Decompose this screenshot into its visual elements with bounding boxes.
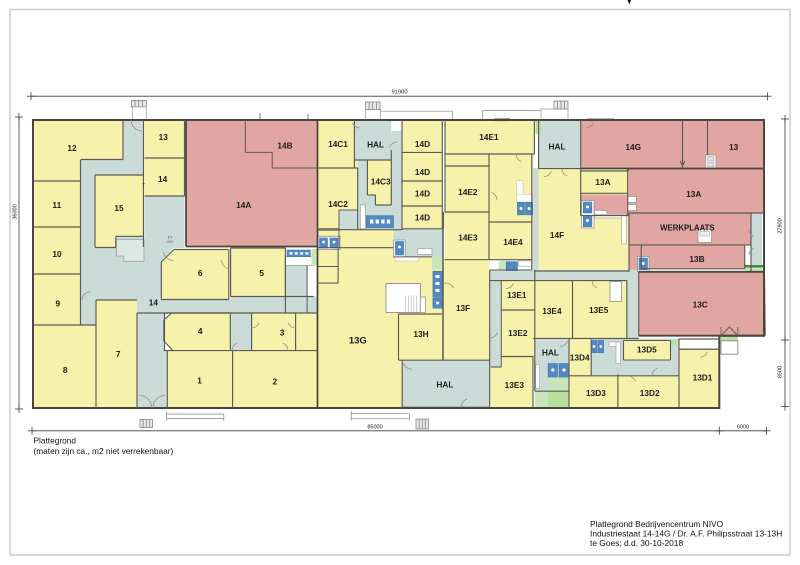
svg-text:14A: 14A [236, 200, 251, 210]
svg-text:Industriestaat 14-14G / Dr. A.: Industriestaat 14-14G / Dr. A.F. Philips… [590, 529, 782, 539]
svg-text:8500: 8500 [778, 366, 784, 378]
svg-text:13D2: 13D2 [640, 388, 660, 398]
svg-text:14C2: 14C2 [328, 199, 348, 209]
svg-text:2: 2 [272, 376, 277, 386]
svg-text:6: 6 [198, 268, 203, 278]
svg-text:HAL: HAL [548, 142, 565, 152]
svg-text:13F: 13F [456, 303, 470, 313]
svg-text:13: 13 [729, 142, 739, 152]
svg-text:11: 11 [52, 200, 61, 210]
svg-text:14C3: 14C3 [371, 177, 391, 187]
svg-text:91900: 91900 [391, 90, 407, 96]
svg-text:ET: ET [168, 236, 174, 240]
svg-text:14: 14 [158, 174, 168, 184]
svg-text:H52: H52 [167, 240, 174, 244]
svg-text:Plattegrond: Plattegrond [34, 436, 77, 446]
svg-text:14D: 14D [415, 167, 430, 177]
svg-text:T: T [142, 183, 145, 189]
svg-text:13E2: 13E2 [508, 328, 528, 338]
svg-text:14F: 14F [550, 230, 564, 240]
svg-text:HAL: HAL [542, 348, 559, 358]
svg-text:14E2: 14E2 [458, 187, 478, 197]
svg-text:27900: 27900 [778, 218, 784, 233]
svg-text:8: 8 [63, 365, 68, 375]
svg-text:14E4: 14E4 [503, 237, 523, 247]
svg-text:14B: 14B [277, 140, 292, 150]
svg-text:13E1: 13E1 [507, 290, 527, 300]
svg-text:13D5: 13D5 [637, 345, 657, 355]
svg-text:13C: 13C [693, 300, 708, 310]
svg-text:1: 1 [197, 376, 202, 386]
svg-text:6000: 6000 [737, 424, 749, 430]
svg-text:13: 13 [159, 132, 169, 142]
svg-text:13E4: 13E4 [542, 306, 562, 316]
svg-text:14E1: 14E1 [479, 132, 499, 142]
svg-text:13H: 13H [413, 329, 428, 339]
svg-text:13D4: 13D4 [570, 353, 590, 363]
svg-text:13G: 13G [349, 336, 367, 347]
svg-text:13D3: 13D3 [586, 388, 606, 398]
svg-text:7: 7 [116, 349, 121, 359]
svg-text:5: 5 [259, 268, 264, 278]
svg-text:14: 14 [149, 298, 159, 308]
svg-text:13E3: 13E3 [505, 380, 525, 390]
svg-text:HAL: HAL [436, 380, 453, 390]
svg-text:9: 9 [55, 299, 60, 309]
svg-text:3: 3 [280, 327, 285, 337]
svg-text:14E3: 14E3 [458, 232, 478, 242]
svg-text:14C1: 14C1 [328, 139, 348, 149]
svg-text:(maten zijn ca., m2 niet verre: (maten zijn ca., m2 niet verrekenbaar) [34, 446, 174, 456]
svg-text:36000: 36000 [13, 204, 19, 219]
svg-text:15: 15 [114, 203, 124, 213]
svg-text:13B: 13B [689, 254, 704, 264]
svg-text:10: 10 [52, 249, 62, 259]
svg-text:13A: 13A [686, 189, 701, 199]
svg-text:14D: 14D [415, 139, 430, 149]
svg-text:12: 12 [67, 143, 77, 153]
svg-text:14G: 14G [625, 142, 641, 152]
svg-text:13A: 13A [595, 177, 610, 187]
svg-text:13D1: 13D1 [693, 373, 713, 383]
svg-text:14D: 14D [415, 189, 430, 199]
svg-text:te Goes; d.d. 30-10-2018: te Goes; d.d. 30-10-2018 [590, 538, 683, 548]
svg-text:Plattegrond Bedrijvencentrum N: Plattegrond Bedrijvencentrum NIVO [590, 519, 724, 529]
svg-text:14D: 14D [415, 213, 430, 223]
svg-text:85000: 85000 [367, 424, 382, 430]
svg-text:HAL: HAL [367, 140, 384, 150]
svg-text:WERKPLAATS: WERKPLAATS [660, 223, 714, 232]
svg-text:13E5: 13E5 [589, 305, 609, 315]
svg-text:4: 4 [198, 326, 203, 336]
